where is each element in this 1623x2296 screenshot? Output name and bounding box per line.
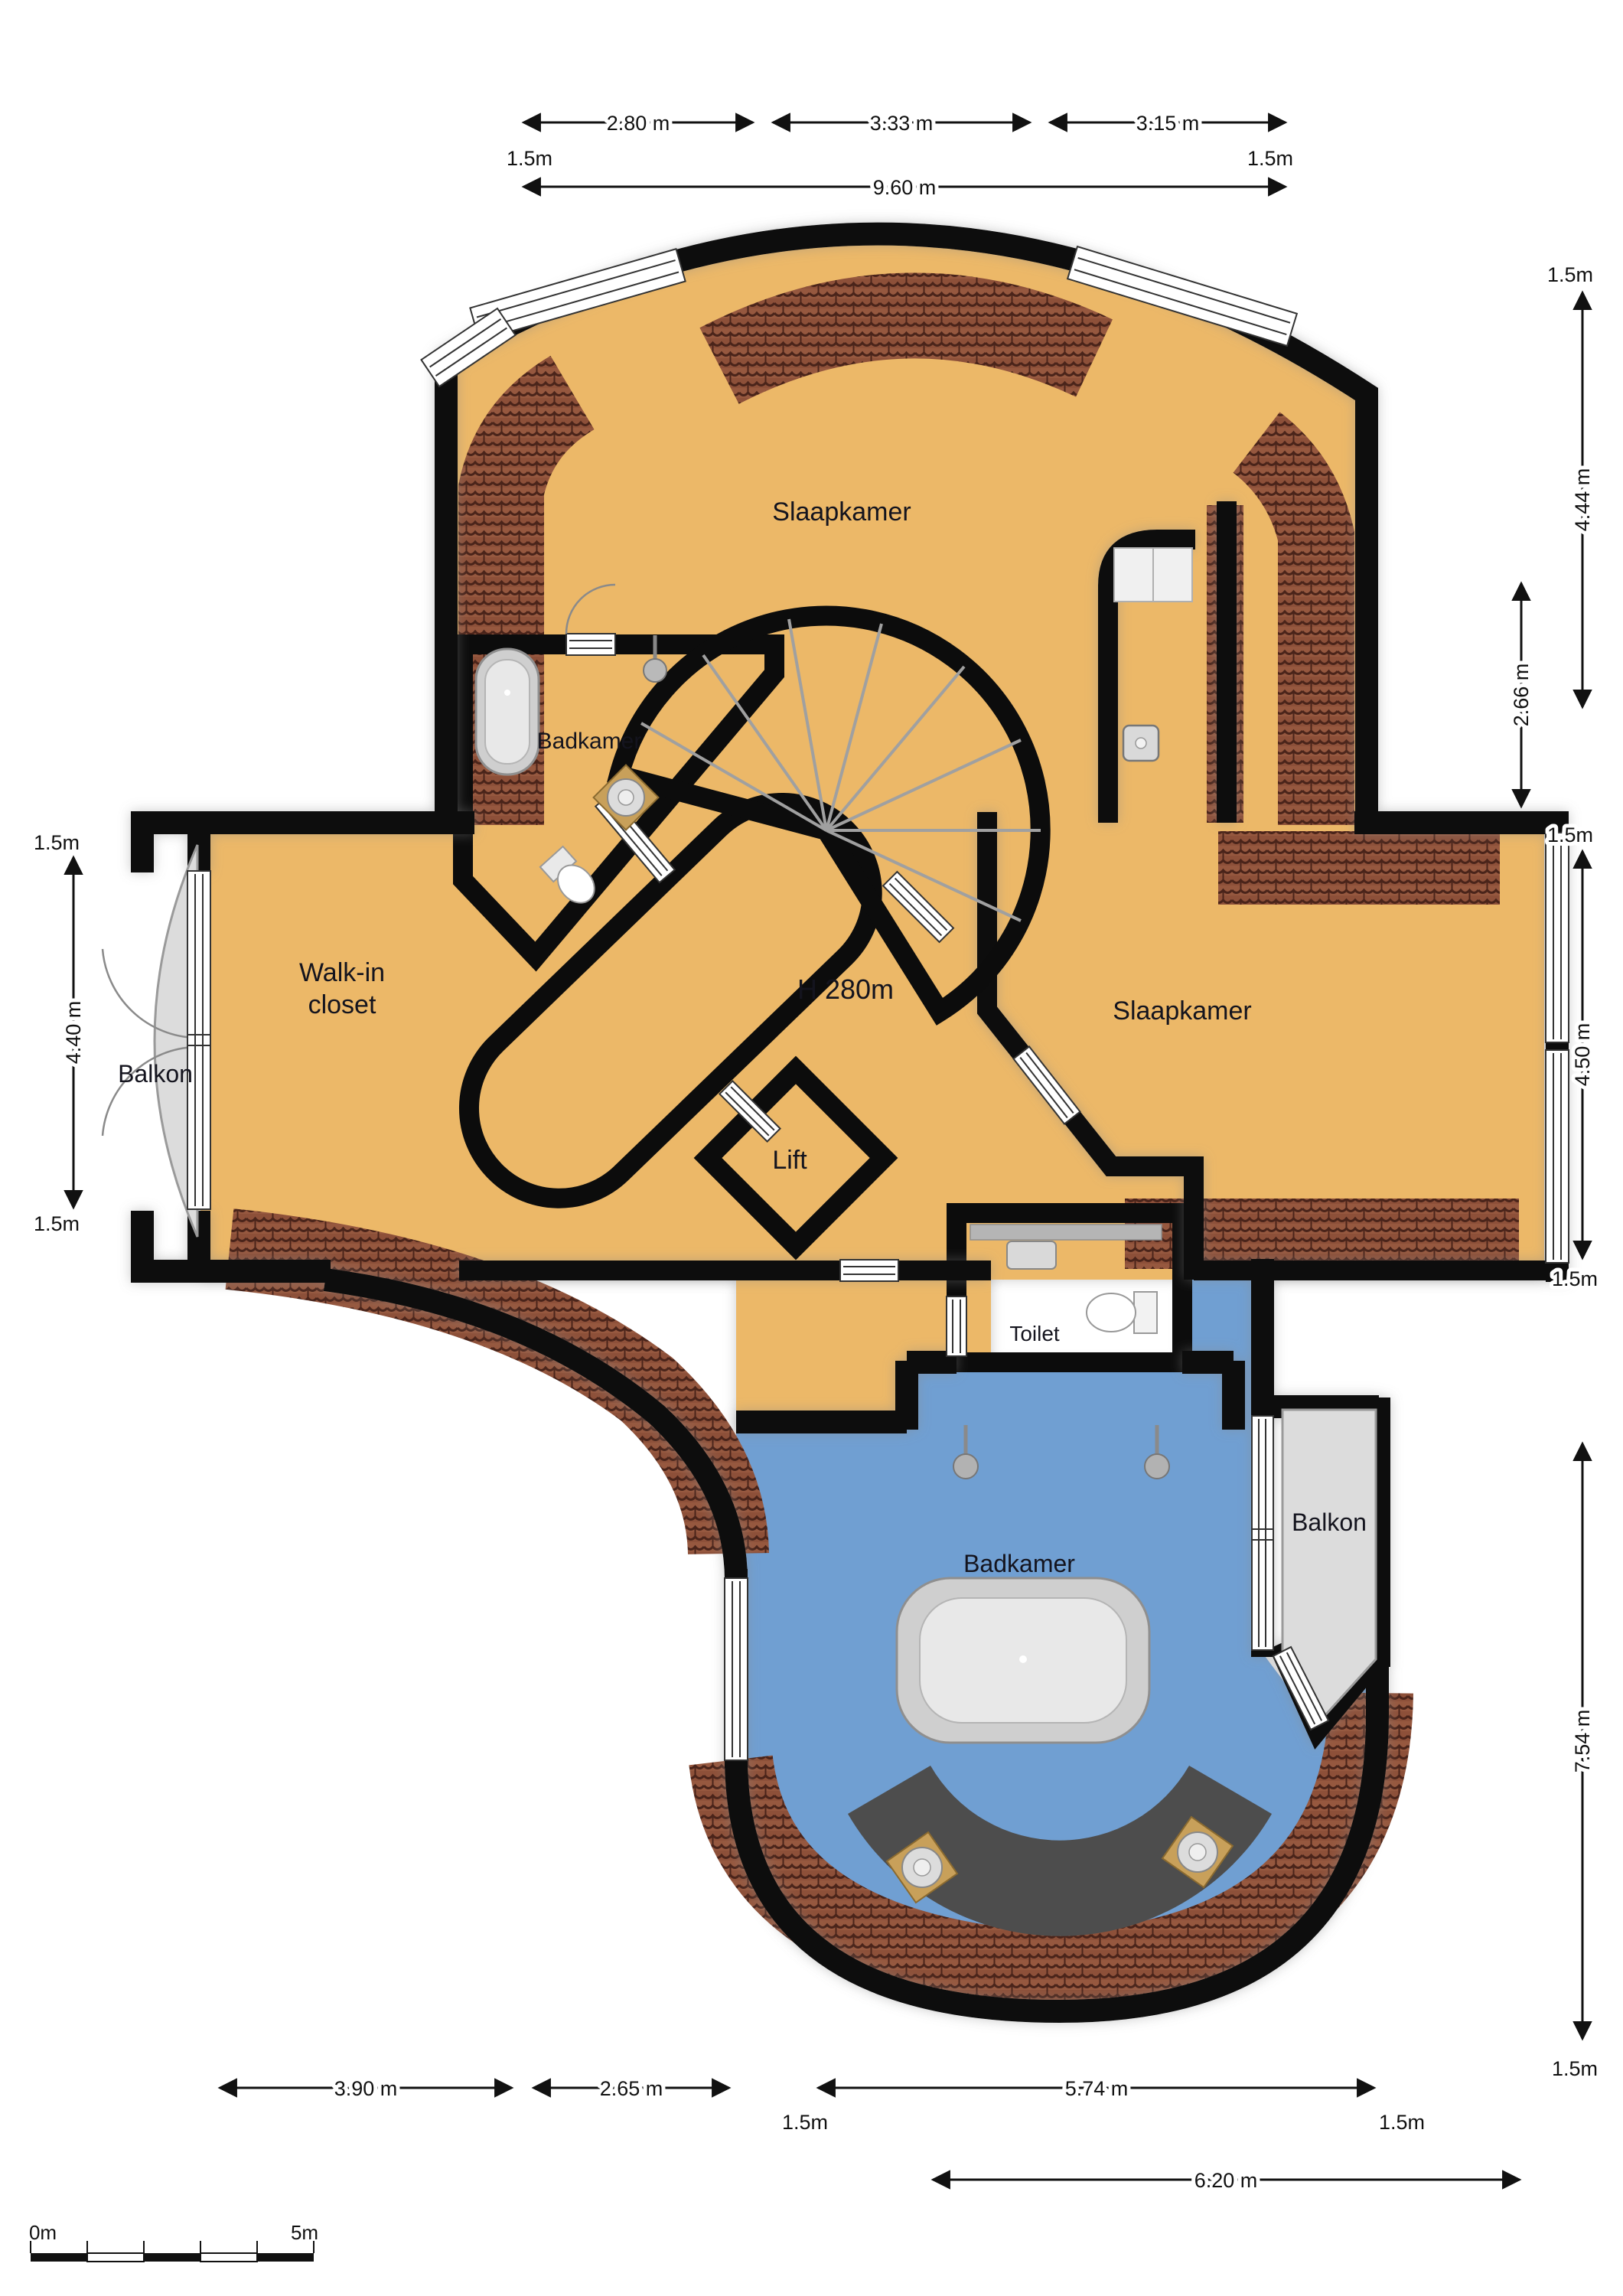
- balcony-left: [103, 845, 197, 1237]
- roof-band-wing-arc: [719, 315, 1094, 366]
- label-height-note: H 280m: [797, 974, 894, 1005]
- label-badkamer-top: Badkamer: [537, 729, 642, 754]
- label-badkamer-bottom: Badkamer: [963, 1550, 1075, 1577]
- dim-right-3: 1.5m: [1547, 823, 1593, 846]
- toilet-sink: [1007, 1241, 1056, 1269]
- dim-right-6: 7.54 m: [1571, 1710, 1594, 1773]
- label-walkin-2: closet: [308, 990, 376, 1019]
- dim-bottom-4: 1.5m: [1379, 2111, 1425, 2134]
- dim-left-0: 1.5m: [34, 831, 80, 854]
- dim-top-seg2: 3.33 m: [870, 112, 934, 135]
- dim-bottom-3: 5.74 m: [1065, 2077, 1129, 2100]
- scale-start: 0m: [29, 2221, 57, 2244]
- dim-bottom-0: 3.90 m: [334, 2077, 398, 2100]
- dim-right-0: 1.5m: [1547, 263, 1593, 286]
- dim-top-margin-right: 1.5m: [1247, 147, 1293, 170]
- dim-bottom-5: 6.20 m: [1194, 2169, 1258, 2192]
- toilet-fixture: [1087, 1292, 1157, 1333]
- dim-right-5: 1.5m: [1552, 1267, 1598, 1290]
- dim-left-1: 4.40 m: [62, 1001, 85, 1065]
- dim-right-1: 4.44 m: [1571, 468, 1594, 532]
- scale-bar: 0m 5m: [29, 2221, 318, 2262]
- label-lift: Lift: [772, 1146, 807, 1175]
- dim-right-7: 1.5m: [1552, 2057, 1598, 2080]
- dim-left-2: 1.5m: [34, 1212, 80, 1235]
- dim-right-4: 4.50 m: [1571, 1023, 1594, 1087]
- label-balkon-right: Balkon: [1292, 1508, 1367, 1536]
- dim-bottom-1: 2.65 m: [600, 2077, 663, 2100]
- dim-top-seg1: 2.80 m: [607, 112, 670, 135]
- label-slaapkamer-top: Slaapkamer: [772, 497, 911, 527]
- dim-right-2: 2.66 m: [1510, 664, 1533, 727]
- label-walkin-1: Walk-in: [299, 958, 385, 987]
- toilet-shelf: [970, 1225, 1162, 1240]
- label-balkon-left: Balkon: [118, 1060, 193, 1088]
- floorplan-page: { "rooms": { "slaapkamer_top": "Slaapkam…: [0, 0, 1623, 2296]
- dim-top-seg3: 3.15 m: [1136, 112, 1200, 135]
- label-slaapkamer-right: Slaapkamer: [1113, 996, 1251, 1026]
- dim-top-margin-left: 1.5m: [507, 147, 552, 170]
- floorplan-canvas: Slaapkamer Badkamer Walk-in closet H 280…: [0, 0, 1623, 2296]
- dim-bottom-2: 1.5m: [782, 2111, 828, 2134]
- scale-end: 5m: [291, 2221, 318, 2244]
- wall-s-curve: [325, 1280, 736, 1580]
- dim-top-total: 9.60 m: [873, 176, 937, 199]
- label-toilet: Toilet: [1009, 1322, 1060, 1345]
